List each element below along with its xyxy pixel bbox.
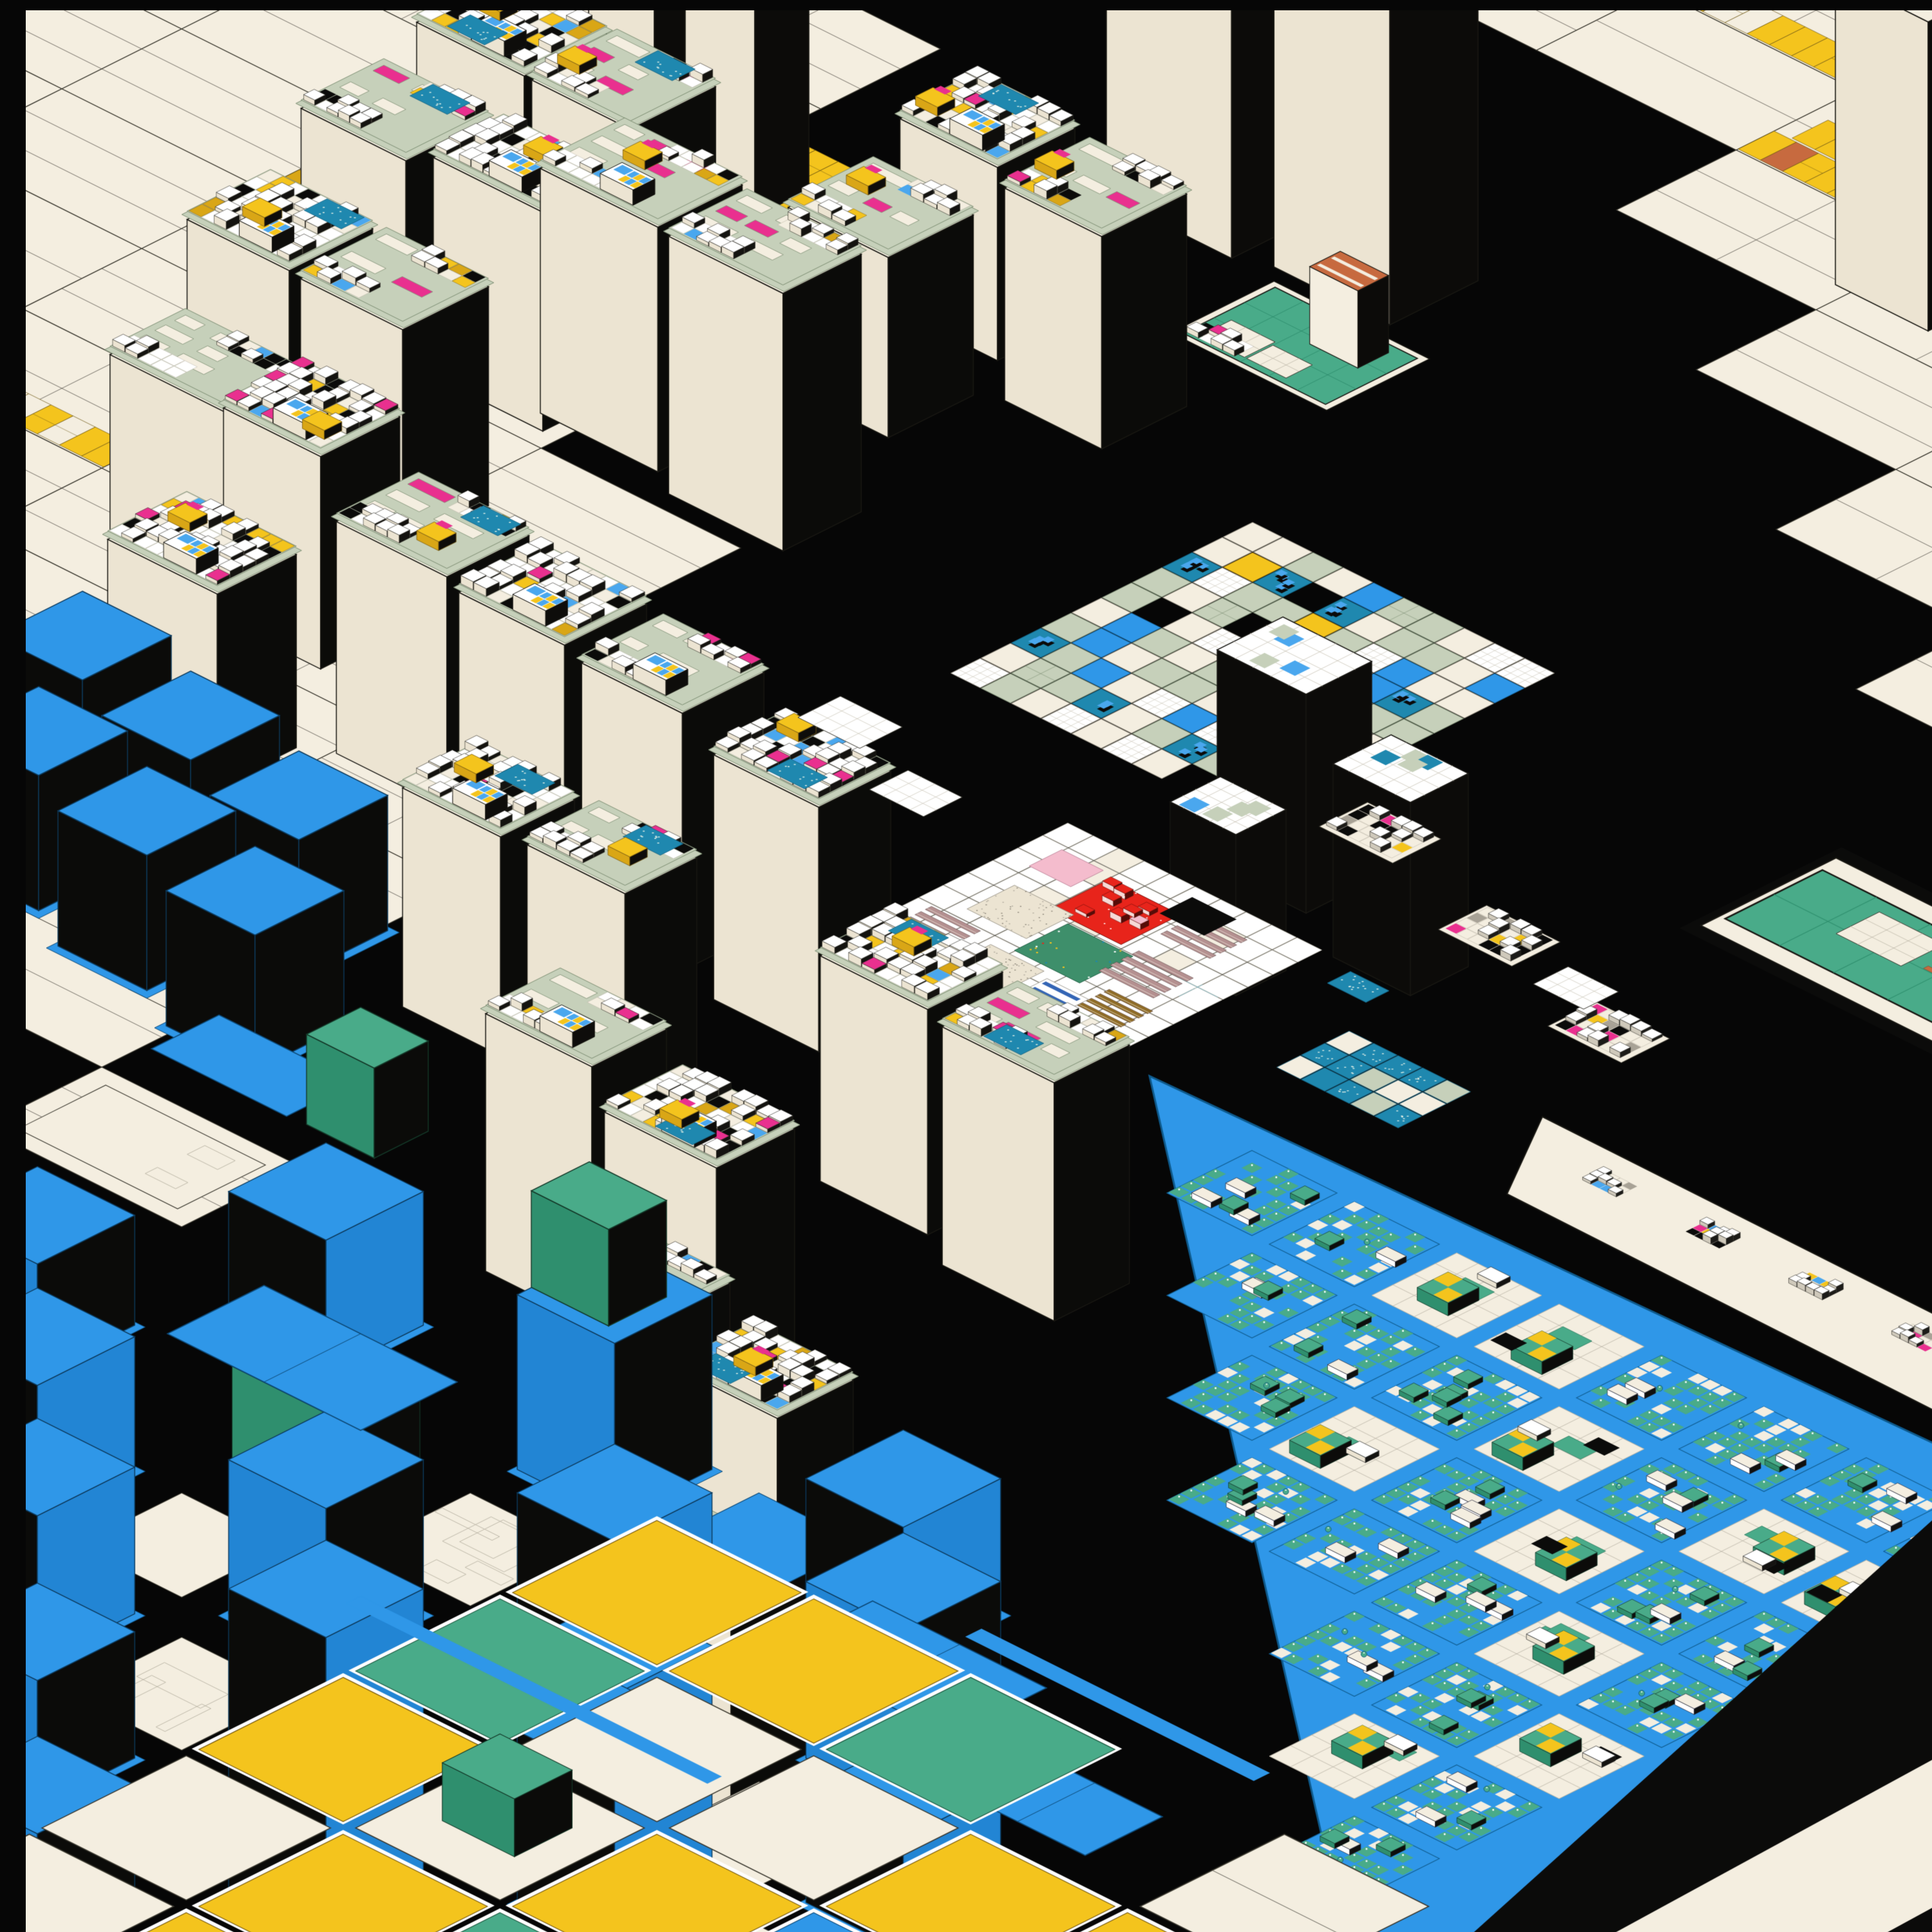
isometric-circuit-city-canvas <box>26 10 1932 1932</box>
artwork-frame: Isometric circuit-board city <box>26 10 1932 1932</box>
